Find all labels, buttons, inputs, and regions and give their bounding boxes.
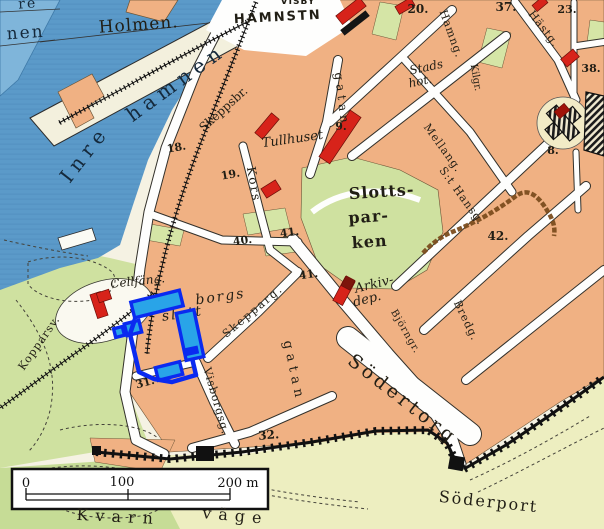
- visby-cut-label: VISBY: [281, 0, 316, 7]
- num-32-label: 32.: [258, 427, 280, 443]
- scale-tick-200: 200 m: [217, 476, 258, 491]
- num-23-label: 23.: [557, 3, 576, 16]
- soderport-gate-tower: [448, 455, 465, 471]
- scale-tick-100: 100: [110, 475, 135, 490]
- num-42-label: 42.: [488, 229, 509, 243]
- fragment-nen-label: nen: [6, 22, 45, 45]
- ken-label: ken: [351, 231, 388, 252]
- num-38-label: 38.: [581, 62, 600, 75]
- num-41a-label: 41.: [279, 225, 300, 241]
- annotation-rect-4: [114, 327, 125, 338]
- num-20-label: 20.: [408, 2, 429, 16]
- wall-tower: [196, 446, 214, 461]
- num-37-label: 37.: [496, 0, 517, 14]
- num-8-label: 8.: [547, 144, 558, 157]
- map-canvas: 0 100 200 m renenHolmen.VISBYHAMNSTNInre…: [0, 0, 604, 529]
- historic-city-map: 0 100 200 m renenHolmen.VISBYHAMNSTNInre…: [0, 0, 604, 529]
- scale-bar: 0 100 200 m: [12, 469, 268, 509]
- num-41b-label: 41.: [298, 267, 319, 283]
- fragment-re-label: re: [18, 0, 38, 13]
- num-40-label: 40.: [232, 233, 253, 249]
- par-label: par-: [348, 206, 390, 228]
